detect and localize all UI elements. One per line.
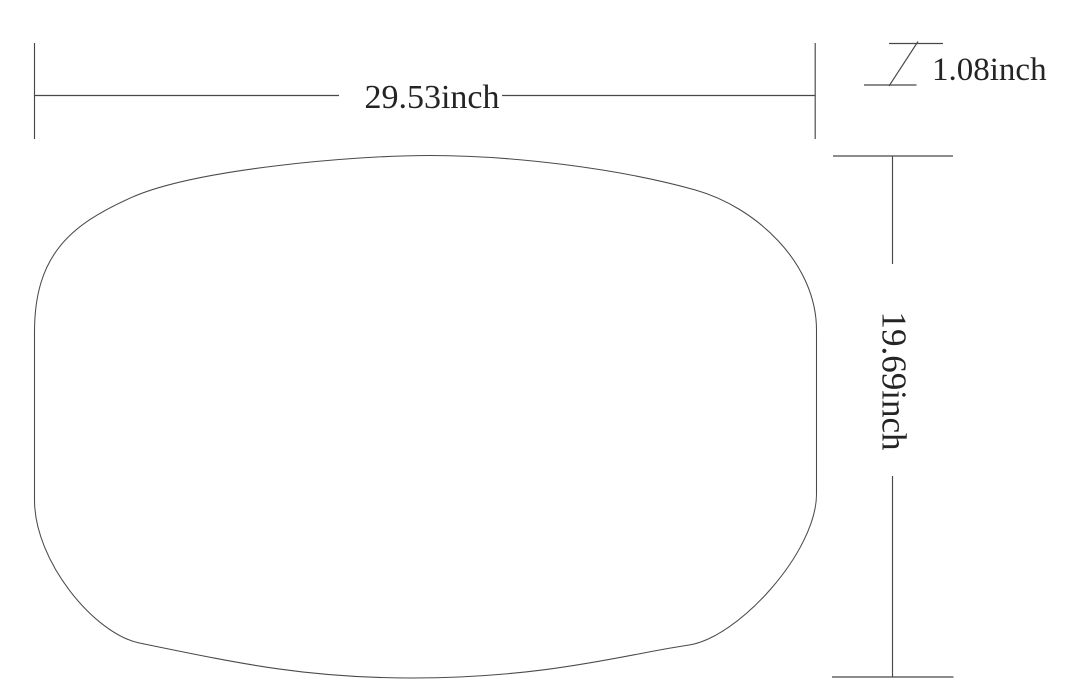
- svg-text:29.53inch: 29.53inch: [364, 79, 499, 116]
- svg-text:19.69inch: 19.69inch: [875, 311, 914, 451]
- svg-text:1.08inch: 1.08inch: [932, 52, 1047, 88]
